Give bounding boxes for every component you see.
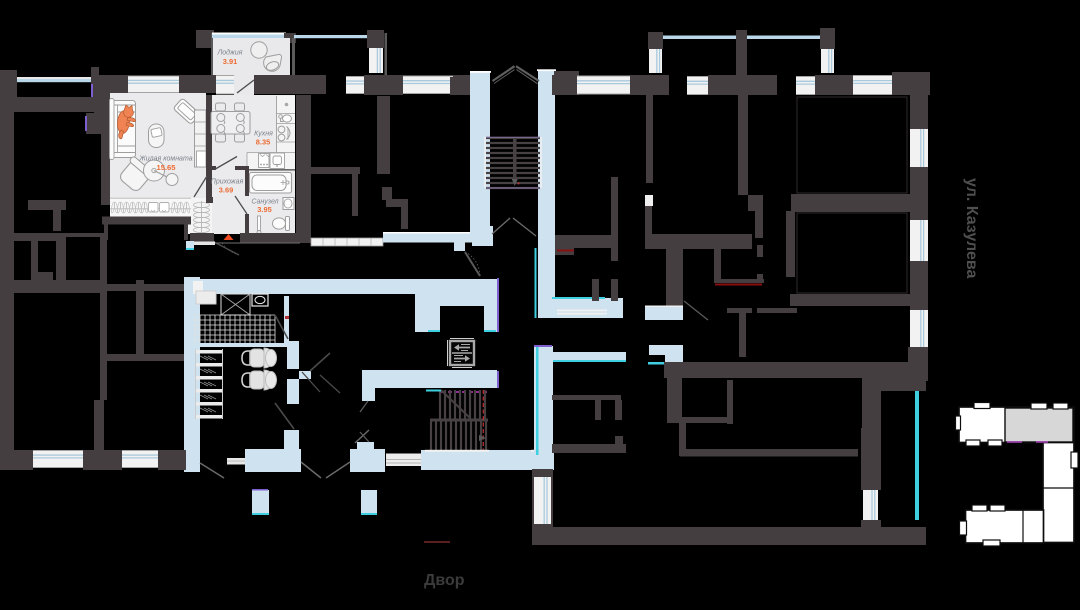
svg-text:8.35: 8.35 [256,138,270,147]
svg-text:ул. Казулева: ул. Казулева [963,178,980,279]
svg-text:Лоджия: Лоджия [216,49,242,57]
svg-text:Жилая комната: Жилая комната [138,156,192,163]
svg-text:Кухня: Кухня [254,131,273,138]
svg-text:Прихожая: Прихожая [211,179,244,186]
svg-text:3.91: 3.91 [223,57,237,66]
svg-text:3.95: 3.95 [257,205,271,214]
svg-text:3.69: 3.69 [219,186,233,195]
svg-text:15.65: 15.65 [156,163,176,172]
svg-text:Двор: Двор [424,572,465,589]
